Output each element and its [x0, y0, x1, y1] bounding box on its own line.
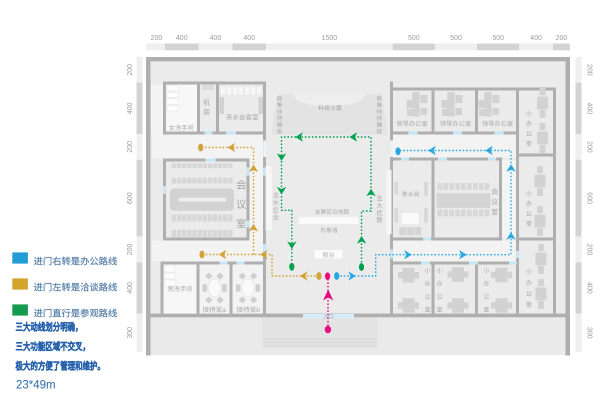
svg-text:400: 400	[586, 103, 593, 115]
svg-text:400: 400	[243, 35, 255, 42]
svg-text:300: 300	[127, 327, 134, 339]
svg-text:b: b	[256, 307, 260, 314]
svg-text:400: 400	[210, 35, 222, 42]
svg-text:400: 400	[176, 35, 188, 42]
svg-text:200: 200	[586, 141, 593, 153]
svg-text:600: 600	[127, 192, 134, 204]
svg-text:400: 400	[127, 282, 134, 294]
svg-text:a: a	[222, 307, 226, 314]
svg-text:400: 400	[586, 282, 593, 294]
svg-text:200: 200	[586, 64, 593, 76]
svg-text:400: 400	[530, 35, 542, 42]
svg-text:500: 500	[450, 35, 462, 42]
svg-text:200: 200	[556, 35, 568, 42]
svg-text:200: 200	[151, 35, 163, 42]
svg-text:500: 500	[492, 35, 504, 42]
svg-text:500: 500	[408, 35, 420, 42]
svg-text:23*49m: 23*49m	[16, 380, 56, 392]
svg-text:300: 300	[586, 327, 593, 339]
svg-text:200: 200	[127, 141, 134, 153]
svg-text:600: 600	[586, 192, 593, 204]
svg-text:1500: 1500	[322, 35, 338, 42]
svg-text:200: 200	[127, 64, 134, 76]
svg-text:200: 200	[127, 244, 134, 256]
svg-text:200: 200	[586, 244, 593, 256]
svg-text:400: 400	[127, 102, 134, 114]
